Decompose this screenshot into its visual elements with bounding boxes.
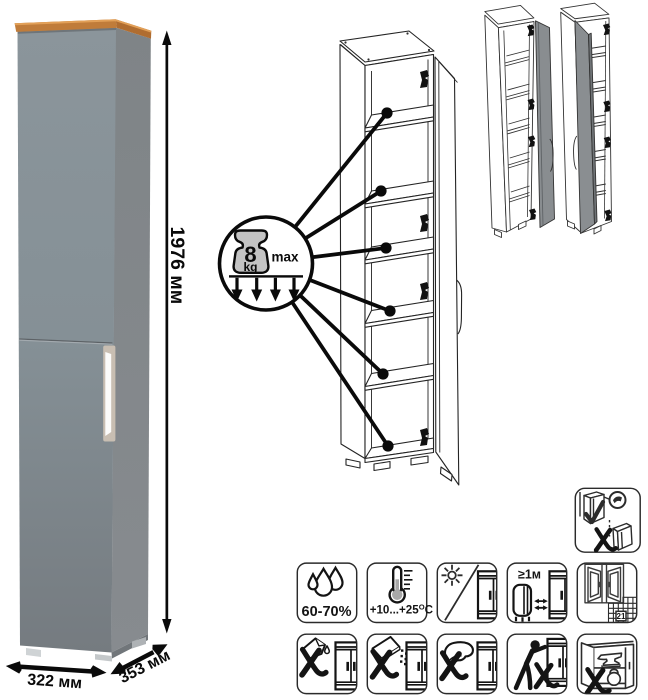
svg-text:≥1м: ≥1м bbox=[518, 567, 541, 581]
svg-text:1976 мм: 1976 мм bbox=[166, 227, 188, 305]
svg-text:+10...+25OC: +10...+25OC bbox=[370, 603, 434, 617]
svg-text:60-70%: 60-70% bbox=[302, 604, 352, 620]
svg-text:max: max bbox=[272, 249, 300, 264]
svg-text:kg: kg bbox=[243, 260, 257, 274]
svg-text:21: 21 bbox=[617, 612, 626, 621]
